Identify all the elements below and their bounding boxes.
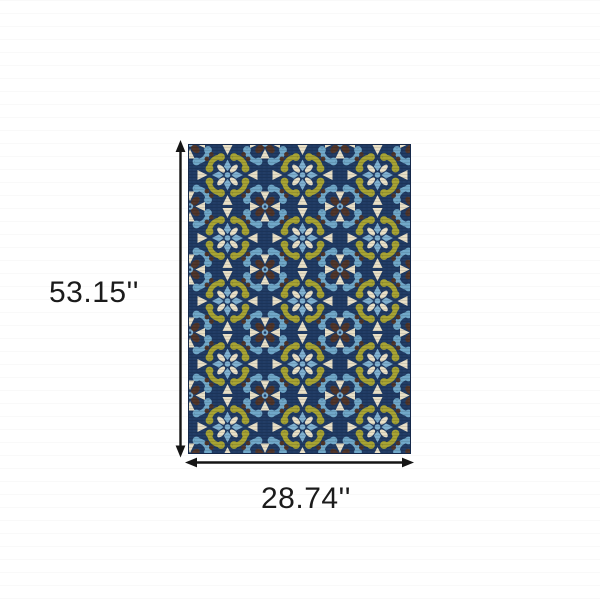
height-arrow-icon [176, 140, 186, 458]
rug-pattern-graphic [188, 144, 411, 454]
width-arrow-icon [185, 458, 414, 468]
dimension-diagram: 53.15'' 28.74'' [0, 0, 600, 600]
height-dimension-label: 53.15'' [26, 276, 162, 310]
width-dimension-label: 28.74'' [222, 482, 390, 516]
rug-image [188, 144, 411, 454]
